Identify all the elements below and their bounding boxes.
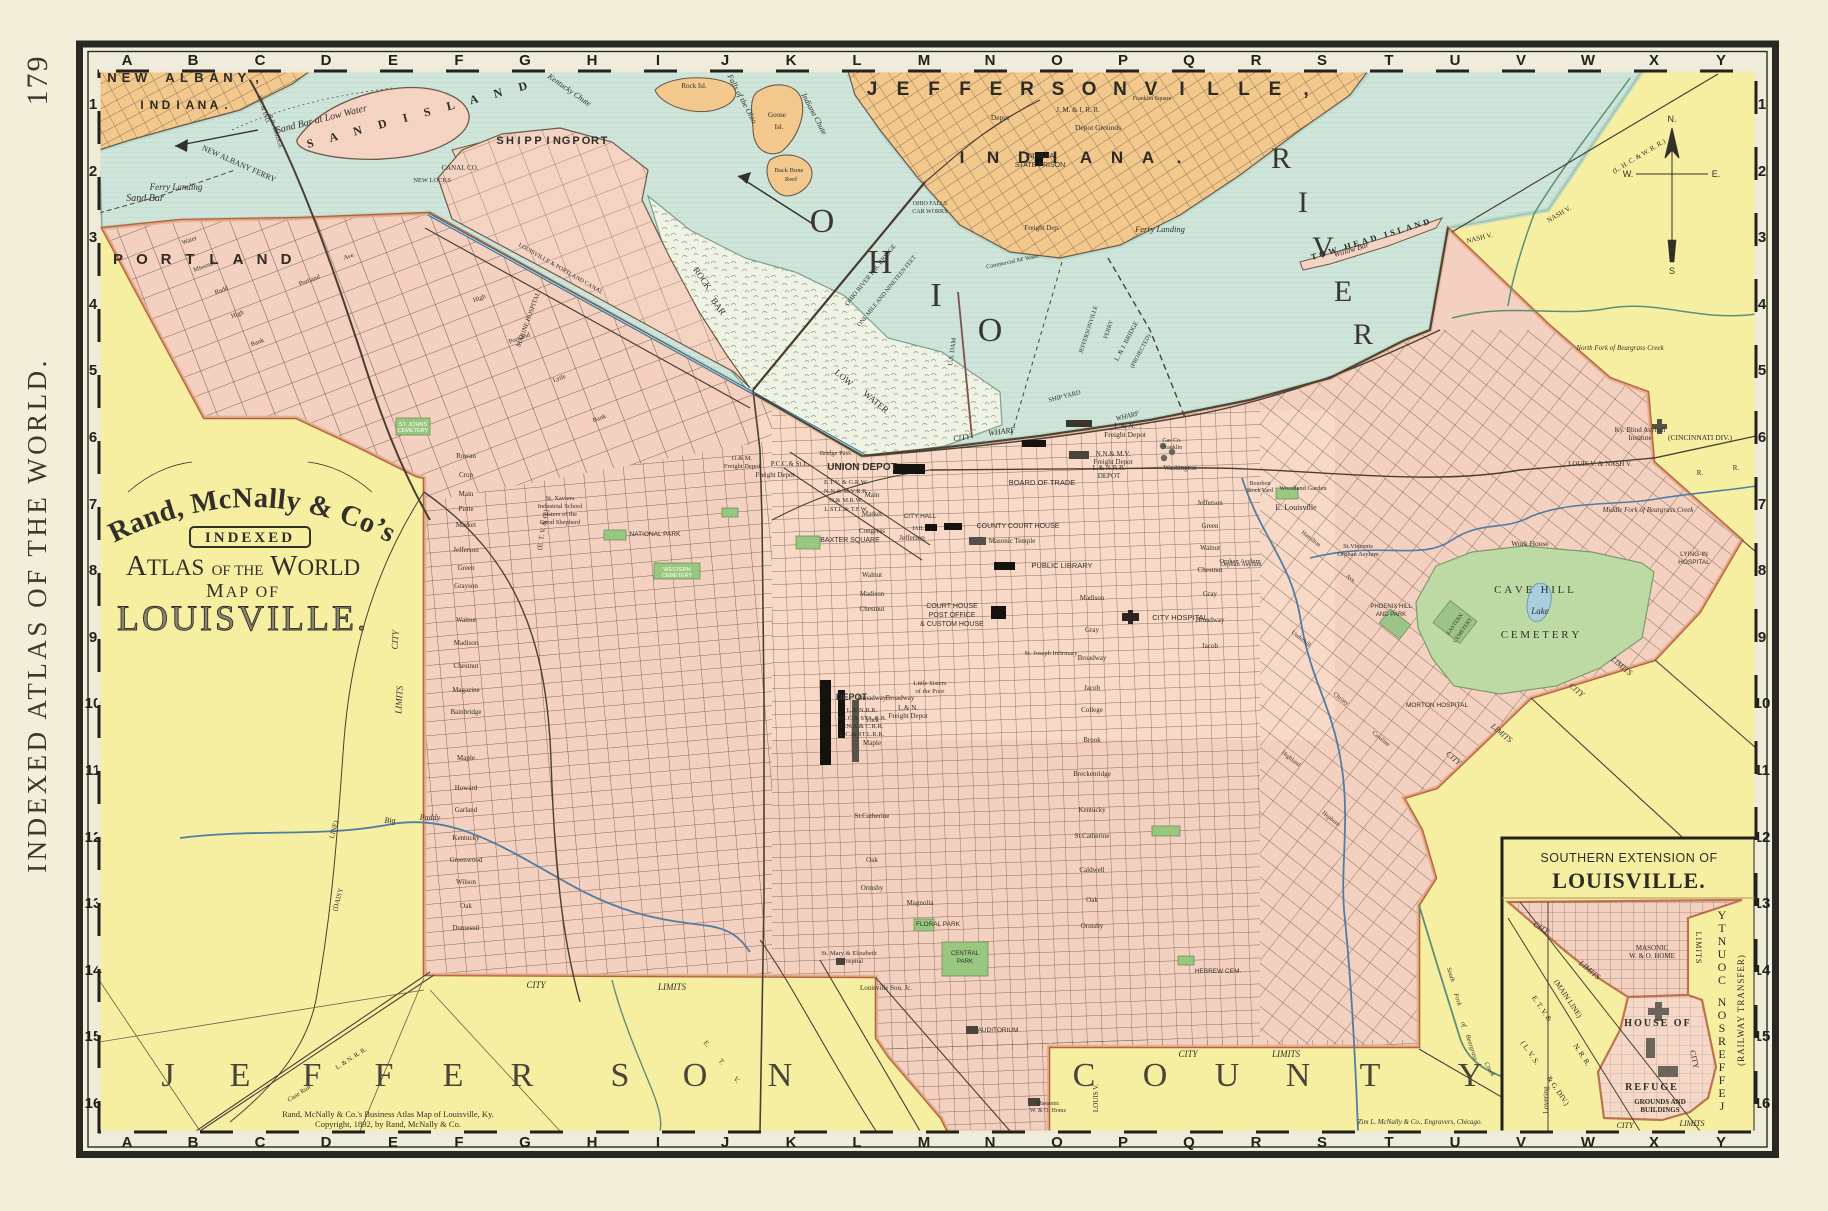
svg-text:Kentucky: Kentucky — [452, 834, 480, 842]
svg-text:Congress: Congress — [859, 527, 885, 535]
svg-text:Y: Y — [1458, 1057, 1483, 1094]
svg-text:C: C — [1718, 973, 1726, 987]
svg-text:St. Joseph Infirmary: St. Joseph Infirmary — [1025, 650, 1079, 657]
svg-text:Masonic Temple: Masonic Temple — [989, 537, 1036, 545]
svg-text:Green: Green — [457, 564, 475, 572]
svg-text:E: E — [897, 79, 910, 100]
svg-text:Depot Grounds: Depot Grounds — [1075, 123, 1121, 132]
svg-text:I: I — [140, 98, 143, 112]
svg-text:I: I — [176, 98, 179, 112]
svg-text:Freight Depot: Freight Depot — [1093, 458, 1132, 466]
svg-text:Middle Fork of Beargrass Creek: Middle Fork of Beargrass Creek — [1602, 506, 1695, 514]
svg-text:Stock Yard: Stock Yard — [1247, 488, 1273, 494]
svg-text:INDEXED ATLAS OF THE WORLD.: INDEXED ATLAS OF THE WORLD. — [22, 357, 52, 873]
svg-text:Ormsby: Ormsby — [1081, 922, 1104, 930]
svg-text:R: R — [1020, 79, 1034, 100]
svg-text:F: F — [928, 79, 940, 100]
svg-text:I: I — [1298, 186, 1308, 219]
svg-text:R: R — [1353, 318, 1373, 351]
svg-text:S: S — [496, 135, 503, 147]
svg-text:Pirtie: Pirtie — [458, 505, 473, 513]
svg-text:I: I — [656, 52, 660, 69]
svg-text:Crop: Crop — [459, 471, 474, 479]
svg-text:Ferry Landing: Ferry Landing — [149, 182, 203, 192]
svg-text:LYING-IN: LYING-IN — [1680, 551, 1708, 558]
svg-text:NEW LOCKS: NEW LOCKS — [413, 177, 451, 184]
svg-text:J: J — [867, 79, 878, 100]
svg-text:L.& N.: L.& N. — [1114, 421, 1136, 430]
svg-text:I: I — [546, 135, 549, 147]
svg-text:Freight Depot: Freight Depot — [888, 712, 927, 720]
svg-text:A: A — [186, 98, 195, 112]
svg-text:Zim L. McNally & Co., Engraver: Zim L. McNally & Co., Engravers, Chicago… — [1358, 1118, 1483, 1126]
svg-text:A: A — [1080, 148, 1092, 167]
svg-text:Oak: Oak — [866, 856, 878, 864]
svg-text:N: N — [1111, 148, 1123, 167]
svg-text:LOUISVILLE.: LOUISVILLE. — [117, 598, 369, 638]
svg-text:9: 9 — [89, 629, 97, 646]
svg-text:Work House: Work House — [1511, 539, 1549, 548]
svg-text:Walnut: Walnut — [1200, 544, 1220, 552]
svg-text:6: 6 — [1758, 429, 1766, 446]
svg-text:L.& N.: L.& N. — [898, 704, 918, 712]
svg-text:F: F — [375, 1057, 394, 1094]
svg-text:St.Catherine: St.Catherine — [1075, 832, 1110, 840]
svg-text:S: S — [611, 1057, 630, 1094]
svg-text:K: K — [786, 1134, 797, 1151]
svg-text:Ferry Landing: Ferry Landing — [1134, 224, 1185, 234]
svg-text:Walnut: Walnut — [456, 616, 476, 624]
svg-text:E: E — [1718, 1086, 1725, 1100]
svg-text:N: N — [768, 1057, 793, 1094]
svg-text:O: O — [1718, 960, 1727, 974]
svg-text:COUNTY COURT HOUSE: COUNTY COURT HOUSE — [977, 523, 1060, 530]
svg-text:O: O — [1051, 1134, 1063, 1151]
svg-text:Broadway: Broadway — [886, 694, 915, 702]
svg-text:D: D — [321, 52, 332, 69]
svg-text:2: 2 — [89, 163, 97, 180]
svg-text:St.Catherine: St.Catherine — [855, 812, 890, 820]
svg-text:INDIANA: INDIANA — [1026, 153, 1055, 160]
svg-text:CEMETERY: CEMETERY — [662, 573, 693, 579]
svg-text:R: R — [1718, 1034, 1726, 1048]
svg-text:3: 3 — [1758, 229, 1766, 246]
svg-text:J: J — [721, 52, 729, 69]
svg-text:Chestnut: Chestnut — [860, 605, 885, 613]
svg-text:W: W — [1581, 52, 1596, 69]
svg-text:Madison: Madison — [860, 590, 885, 598]
svg-text:Depot: Depot — [991, 113, 1010, 122]
svg-text:Madison: Madison — [1080, 594, 1105, 602]
svg-text:R.: R. — [1733, 464, 1740, 472]
svg-text:X: X — [1649, 1134, 1659, 1151]
svg-text:HEBREW CEM.: HEBREW CEM. — [1195, 968, 1242, 975]
svg-text:7: 7 — [89, 496, 97, 513]
svg-text:Louisville Sou. Jc.: Louisville Sou. Jc. — [860, 984, 912, 992]
svg-text:MASONIC: MASONIC — [1636, 944, 1669, 952]
svg-text:Isl.: Isl. — [775, 123, 784, 131]
svg-text:Franklin: Franklin — [1162, 445, 1182, 451]
svg-text:L: L — [852, 1134, 861, 1151]
svg-text:Dumesnil: Dumesnil — [452, 924, 479, 932]
svg-text:College: College — [1081, 706, 1103, 714]
svg-text:A: A — [122, 52, 133, 69]
svg-text:E: E — [388, 52, 398, 69]
svg-text:D: D — [321, 1134, 332, 1151]
svg-text:N: N — [985, 1134, 996, 1151]
svg-text:MORTON HOSPITAL: MORTON HOSPITAL — [1406, 702, 1469, 709]
svg-text:M: M — [918, 1134, 931, 1151]
svg-text:Oak: Oak — [460, 902, 472, 910]
svg-text:I: I — [517, 135, 520, 147]
svg-text:I: I — [930, 277, 941, 314]
svg-text:N: N — [985, 52, 996, 69]
svg-text:CITY: CITY — [526, 980, 546, 990]
svg-text:6: 6 — [89, 429, 97, 446]
svg-text:F: F — [959, 79, 971, 100]
svg-text:Bourbon: Bourbon — [1250, 481, 1271, 487]
svg-text:P.C.C.& ST.L.R.R.: P.C.C.& ST.L.R.R. — [837, 715, 887, 722]
svg-text:C: C — [255, 1134, 266, 1151]
svg-text:AUDITORIUM: AUDITORIUM — [977, 1027, 1018, 1034]
svg-text:St.Vincents: St.Vincents — [1343, 543, 1373, 550]
svg-text:Maple: Maple — [457, 754, 475, 762]
svg-text:R.: R. — [1697, 469, 1704, 477]
svg-text:Orphan Asylum: Orphan Asylum — [1220, 561, 1261, 568]
svg-text:Orphan Asylum: Orphan Asylum — [1337, 551, 1378, 558]
svg-text:Little Sisters: Little Sisters — [913, 680, 947, 687]
svg-text:U: U — [1450, 52, 1461, 69]
svg-text:Brook: Brook — [1083, 736, 1101, 744]
svg-text:B: B — [188, 52, 199, 69]
svg-text:Lovering: Lovering — [1541, 1086, 1550, 1114]
svg-text:O: O — [1718, 1008, 1727, 1022]
svg-text:CITY: CITY — [1617, 1121, 1635, 1130]
svg-text:U: U — [1718, 947, 1727, 961]
svg-text:C E M E T E R Y: C E M E T E R Y — [1501, 629, 1580, 641]
svg-text:Q: Q — [1183, 1134, 1195, 1151]
svg-text:North Fork of Beargrass Cr: North Fork of Beargrass Creek — [1575, 344, 1664, 352]
svg-text:BAXTER SQUARE: BAXTER SQUARE — [820, 537, 880, 544]
svg-text:L.C.& ST.L.R.R.: L.C.& ST.L.R.R. — [840, 731, 885, 738]
svg-text:R: R — [1251, 1134, 1262, 1151]
svg-text:BOARD OF TRADE: BOARD OF TRADE — [1009, 478, 1076, 487]
svg-text:F: F — [454, 52, 463, 69]
svg-text:Gas Co.: Gas Co. — [1162, 438, 1182, 444]
svg-text:LIMITS: LIMITS — [393, 685, 405, 715]
svg-text:R: R — [1271, 142, 1291, 175]
svg-text:J: J — [721, 1134, 729, 1151]
svg-text:Reef: Reef — [785, 176, 798, 183]
svg-text:4: 4 — [89, 296, 98, 313]
svg-text:Main: Main — [865, 491, 880, 499]
svg-text:W. & O. Home: W. & O. Home — [1030, 1108, 1067, 1114]
svg-text:O: O — [136, 251, 148, 268]
svg-text:Freight Depot: Freight Depot — [1104, 430, 1147, 439]
svg-text:N: N — [257, 251, 268, 268]
svg-text:LOUISVILLE.: LOUISVILLE. — [1552, 868, 1705, 893]
svg-text:F: F — [1719, 1060, 1726, 1074]
svg-text:Jefferson: Jefferson — [1197, 499, 1223, 507]
svg-text:R: R — [1251, 52, 1262, 69]
svg-text:Sand Bar: Sand Bar — [126, 193, 164, 204]
svg-text:A: A — [233, 251, 244, 268]
svg-text:A: A — [210, 98, 219, 112]
svg-text:LIMITS: LIMITS — [1679, 1119, 1705, 1128]
svg-text:POST OFFICE: POST OFFICE — [929, 612, 976, 619]
svg-text:R: R — [591, 135, 599, 147]
svg-text:N: N — [987, 148, 999, 167]
svg-text:COURT HOUSE: COURT HOUSE — [926, 603, 978, 610]
svg-text:Jacob: Jacob — [1084, 684, 1100, 692]
svg-text:N.N.& M.V.R.R.: N.N.& M.V.R.R. — [824, 488, 869, 495]
svg-text:SOUTHERN EXTENSION OF: SOUTHERN EXTENSION OF — [1540, 851, 1717, 865]
svg-text:Y: Y — [1716, 1134, 1726, 1151]
svg-text:JAIL: JAIL — [912, 526, 925, 532]
svg-text:Walnut: Walnut — [862, 571, 882, 579]
svg-text:PHOENIX HILL: PHOENIX HILL — [1370, 604, 1412, 610]
svg-text:2: 2 — [1758, 163, 1766, 180]
svg-text:Jacob: Jacob — [1202, 642, 1218, 650]
svg-text:LIMITS: LIMITS — [657, 982, 687, 992]
svg-text:V: V — [1516, 52, 1526, 69]
svg-text:L: L — [852, 52, 861, 69]
svg-text:G: G — [519, 1134, 531, 1151]
svg-text:York: York — [865, 716, 879, 724]
svg-text:PARK: PARK — [957, 959, 973, 965]
svg-text:DEPOT: DEPOT — [1098, 472, 1121, 480]
svg-text:G: G — [519, 52, 531, 69]
svg-text:O: O — [978, 312, 1003, 349]
svg-text:Ormsby: Ormsby — [861, 884, 884, 892]
svg-text:LOUIS V. & NASH V.: LOUIS V. & NASH V. — [1568, 460, 1632, 468]
svg-text:Big: Big — [384, 816, 395, 825]
svg-text:Broadway: Broadway — [1196, 616, 1225, 624]
svg-text:O: O — [1143, 1057, 1168, 1094]
svg-text:L: L — [1207, 79, 1219, 100]
svg-text:9: 9 — [1758, 629, 1766, 646]
svg-text:LOUIS V.: LOUIS V. — [1092, 1084, 1100, 1112]
svg-text:REFUGE: REFUGE — [1625, 1082, 1679, 1093]
svg-text:Industrial School: Industrial School — [538, 503, 583, 510]
svg-text:1: 1 — [89, 96, 97, 113]
svg-text:O: O — [810, 203, 835, 240]
svg-text:W. & O. HOME: W. & O. HOME — [1629, 952, 1675, 960]
svg-text:(CINCINNATI DIV.): (CINCINNATI DIV.) — [1668, 433, 1733, 442]
svg-text:S: S — [1669, 266, 1675, 276]
svg-text:Goose: Goose — [768, 111, 786, 119]
svg-text:Y: Y — [1718, 908, 1727, 922]
svg-text:INDEXED: INDEXED — [205, 530, 295, 546]
svg-text:Lake: Lake — [1530, 606, 1549, 616]
svg-text:C A V E H I L L: C A V E H I L L — [1494, 584, 1574, 596]
svg-text:Green: Green — [1201, 522, 1219, 530]
svg-text:8: 8 — [1758, 562, 1766, 579]
svg-text:E: E — [1269, 79, 1282, 100]
svg-text:I: I — [1179, 79, 1184, 100]
svg-text:CENTRAL: CENTRAL — [951, 951, 980, 957]
svg-text:Institute: Institute — [1629, 434, 1652, 442]
svg-text:J: J — [1720, 1099, 1725, 1113]
svg-text:St. Xaviers: St. Xaviers — [546, 495, 575, 502]
svg-text:O: O — [683, 1057, 708, 1094]
svg-text:STATE PRISON: STATE PRISON — [1015, 162, 1065, 169]
svg-text:Greenwood: Greenwood — [450, 856, 483, 864]
svg-text:L.N.A.& C.R.R.: L.N.A.& C.R.R. — [841, 723, 884, 730]
svg-text:.: . — [224, 98, 227, 112]
svg-text:CEMETERY: CEMETERY — [398, 428, 429, 434]
svg-text:N: N — [198, 98, 207, 112]
svg-text:Chestnut: Chestnut — [454, 662, 479, 670]
svg-text:N: N — [1718, 995, 1727, 1009]
svg-text:O: O — [1082, 79, 1097, 100]
svg-text:Maple: Maple — [863, 739, 881, 747]
svg-text:I: I — [960, 148, 965, 167]
svg-text:S: S — [1052, 79, 1065, 100]
svg-text:Freight Depot: Freight Depot — [724, 463, 760, 470]
svg-text:T: T — [601, 135, 608, 147]
svg-text:P: P — [534, 135, 541, 147]
svg-text:W: W — [1581, 1134, 1596, 1151]
svg-text:Copyright, 1892, by Rand, McNa: Copyright, 1892, by Rand, McNally & Co. — [315, 1119, 461, 1129]
svg-text:of the Poor: of the Poor — [916, 688, 946, 695]
svg-text:C: C — [255, 52, 266, 69]
svg-text:I: I — [656, 1134, 660, 1151]
svg-text:P: P — [1118, 52, 1128, 69]
svg-text:O: O — [1051, 52, 1063, 69]
svg-text:Howard: Howard — [455, 784, 478, 792]
svg-text:Paddy: Paddy — [419, 813, 441, 822]
svg-text:Y: Y — [1716, 52, 1726, 69]
svg-text:L: L — [1238, 79, 1250, 100]
svg-text:F: F — [454, 1134, 463, 1151]
svg-text:E: E — [388, 1134, 398, 1151]
svg-text:HOUSE OF: HOUSE OF — [1624, 1018, 1691, 1029]
svg-text:FLORAL PARK: FLORAL PARK — [916, 921, 961, 928]
svg-text:N.: N. — [1668, 114, 1677, 124]
svg-text:Hospital: Hospital — [841, 958, 863, 965]
svg-text:4: 4 — [1758, 296, 1767, 313]
svg-text:Grayson: Grayson — [454, 582, 478, 590]
svg-text:Rock Isl.: Rock Isl. — [681, 82, 707, 90]
svg-text:M: M — [918, 52, 931, 69]
svg-text:J. M. & I. R. R.: J. M. & I. R. R. — [1056, 106, 1100, 114]
svg-text:Woodland Garden: Woodland Garden — [1279, 485, 1327, 492]
svg-text:1: 1 — [1758, 96, 1766, 113]
svg-text:A: A — [122, 1134, 133, 1151]
svg-text:T: T — [1384, 1134, 1393, 1151]
svg-text:AND PARK: AND PARK — [1376, 612, 1406, 618]
svg-text:Gray: Gray — [1085, 626, 1099, 634]
svg-text:Madison: Madison — [454, 639, 479, 647]
svg-text:R: R — [161, 251, 172, 268]
svg-text:B: B — [188, 1134, 199, 1151]
svg-text:P: P — [572, 135, 579, 147]
svg-text:Caldwell: Caldwell — [1079, 866, 1104, 874]
svg-text:NATIONAL PARK: NATIONAL PARK — [630, 531, 681, 538]
svg-text:Broadway: Broadway — [1078, 654, 1107, 662]
svg-text:Bridge Pass.: Bridge Pass. — [820, 450, 853, 457]
svg-text:O: O — [582, 135, 591, 147]
svg-text:(RAILWAY TRANSFER): (RAILWAY TRANSFER) — [1736, 954, 1746, 1066]
svg-text:S: S — [1317, 52, 1327, 69]
svg-text:P.C.C.& St.L.: P.C.C.& St.L. — [771, 460, 810, 468]
svg-text:Garland: Garland — [455, 806, 478, 814]
svg-text:& CUSTOM HOUSE: & CUSTOM HOUSE — [920, 621, 984, 628]
svg-text:3: 3 — [89, 229, 97, 246]
svg-text:Rowan: Rowan — [456, 452, 476, 460]
svg-text:E: E — [1334, 275, 1352, 308]
svg-text:N: N — [1113, 79, 1127, 100]
svg-text:A: A — [1142, 148, 1154, 167]
svg-text:T: T — [1360, 1057, 1381, 1094]
svg-text:P: P — [524, 135, 531, 147]
svg-text:T: T — [185, 251, 194, 268]
svg-text:Massonic: Massonic — [1037, 1101, 1060, 1107]
svg-text:E. Louisville: E. Louisville — [1275, 503, 1317, 512]
svg-text:GROUNDS AND: GROUNDS AND — [1634, 1098, 1686, 1106]
svg-text:LIMITS: LIMITS — [1694, 932, 1703, 965]
svg-text:H: H — [506, 135, 514, 147]
svg-text:X: X — [1649, 52, 1659, 69]
svg-text:PUBLIC LIBRARY: PUBLIC LIBRARY — [1031, 561, 1092, 570]
svg-text:N: N — [150, 98, 159, 112]
svg-text:St. Mary & Elizabeth: St. Mary & Elizabeth — [821, 950, 877, 957]
svg-text:Magazine: Magazine — [452, 686, 480, 694]
svg-text:E: E — [443, 1057, 464, 1094]
svg-text:Freight Dep.: Freight Dep. — [1024, 224, 1060, 232]
svg-text:U: U — [1450, 1134, 1461, 1151]
svg-text:Gray: Gray — [1203, 590, 1217, 598]
svg-text:HOSPITAL: HOSPITAL — [1678, 559, 1710, 566]
svg-text:J: J — [161, 1057, 174, 1094]
svg-text:Rand, McNally & Co.'s Business: Rand, McNally & Co.'s Business Atlas Map… — [282, 1109, 494, 1119]
svg-text:8: 8 — [89, 562, 97, 579]
svg-text:Back Bone: Back Bone — [775, 167, 804, 174]
svg-text:T: T — [1718, 921, 1726, 935]
svg-text:L.& N.R.R.: L.& N.R.R. — [847, 707, 878, 714]
svg-text:.: . — [1177, 148, 1182, 167]
svg-text:Q: Q — [1183, 52, 1195, 69]
svg-text:Jefferson: Jefferson — [899, 534, 925, 542]
svg-text:O.& M.: O.& M. — [732, 455, 753, 462]
svg-text:Wilson: Wilson — [456, 878, 476, 886]
svg-text:D: D — [281, 251, 292, 268]
svg-text:H: H — [587, 52, 598, 69]
svg-text:R: R — [511, 1057, 534, 1094]
svg-text:Jefferson: Jefferson — [453, 546, 479, 554]
svg-text:E.T.V. & G.R.W.: E.T.V. & G.R.W. — [824, 479, 868, 486]
svg-text:Oak: Oak — [1086, 896, 1098, 904]
svg-text:Franklin Square: Franklin Square — [1133, 96, 1172, 102]
svg-text:N: N — [553, 135, 561, 147]
svg-text:S: S — [1317, 1134, 1327, 1151]
svg-text:U: U — [1215, 1057, 1240, 1094]
svg-text:179: 179 — [21, 55, 54, 106]
svg-text:OHIO FALLS: OHIO FALLS — [913, 201, 947, 207]
svg-text:CITY HALL: CITY HALL — [904, 513, 937, 520]
svg-text:Chestnut: Chestnut — [1198, 566, 1223, 574]
svg-text:Bainbridge: Bainbridge — [450, 708, 481, 716]
svg-text:Washington: Washington — [1163, 464, 1197, 472]
svg-text:W.: W. — [1623, 169, 1634, 179]
svg-text:CITY: CITY — [390, 629, 401, 650]
svg-text:CANAL CO.: CANAL CO. — [441, 164, 478, 172]
svg-text:O.& M.R.W.: O.& M.R.W. — [829, 497, 863, 504]
svg-text:E: E — [990, 79, 1003, 100]
svg-text:H: H — [587, 1134, 598, 1151]
svg-text:BUILDINGS: BUILDINGS — [1640, 1106, 1679, 1114]
